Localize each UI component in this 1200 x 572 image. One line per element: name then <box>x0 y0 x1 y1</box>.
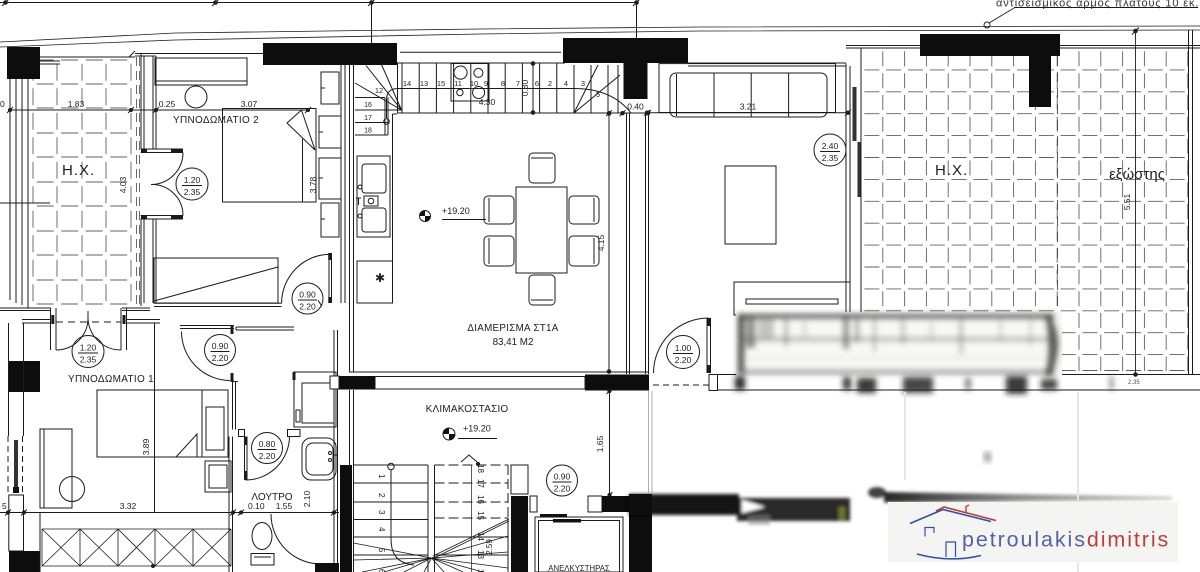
svg-text:✱: ✱ <box>375 271 385 285</box>
svg-text:3: 3 <box>377 510 386 515</box>
svg-text:11: 11 <box>454 79 462 88</box>
svg-text:2.20: 2.20 <box>554 484 571 494</box>
svg-text:4.15: 4.15 <box>596 234 606 251</box>
svg-text:ΔΙΑΜΕΡΙΣΜΑ ΣΤ1Α: ΔΙΑΜΕΡΙΣΜΑ ΣΤ1Α <box>467 323 558 334</box>
svg-text:83,41 Μ2: 83,41 Μ2 <box>493 337 534 348</box>
svg-text:1.55: 1.55 <box>276 501 293 511</box>
svg-text:16: 16 <box>364 102 372 109</box>
svg-text:3.21: 3.21 <box>740 102 757 112</box>
svg-text:2.35: 2.35 <box>1128 380 1140 386</box>
svg-text:1: 1 <box>377 474 386 479</box>
svg-text:2: 2 <box>377 493 386 498</box>
svg-text:1.83: 1.83 <box>68 99 85 109</box>
svg-text:0.40: 0.40 <box>627 102 644 112</box>
svg-text:1.20: 1.20 <box>184 175 201 185</box>
svg-text:εξώστης: εξώστης <box>1109 166 1165 183</box>
svg-text:4: 4 <box>564 79 568 88</box>
svg-text:10: 10 <box>470 79 478 88</box>
svg-text:2.35: 2.35 <box>822 153 839 163</box>
svg-text:4.03: 4.03 <box>118 176 128 193</box>
svg-text:ΥΠΝΟΔΩΜΑΤΙΟ 2: ΥΠΝΟΔΩΜΑΤΙΟ 2 <box>173 115 259 126</box>
svg-text:0.25: 0.25 <box>159 99 176 109</box>
svg-text:14: 14 <box>403 79 411 88</box>
svg-text:0.80: 0.80 <box>520 79 530 96</box>
svg-text:5: 5 <box>596 90 600 99</box>
svg-text:0: 0 <box>0 99 5 109</box>
svg-text:1.20: 1.20 <box>80 343 97 353</box>
svg-text:0.90: 0.90 <box>299 290 316 300</box>
svg-text:17: 17 <box>364 115 372 122</box>
svg-text:+19.20: +19.20 <box>463 424 491 434</box>
svg-text:ΚΛΙΜΑΚΟΣΤΑΣΙΟ: ΚΛΙΜΑΚΟΣΤΑΣΙΟ <box>426 404 509 415</box>
svg-text:3.32: 3.32 <box>120 501 137 511</box>
svg-text:ΑΝΕΛΚΥΣΤΗΡΑΣ: ΑΝΕΛΚΥΣΤΗΡΑΣ <box>548 564 610 572</box>
svg-text:3: 3 <box>581 79 585 88</box>
svg-text:Η.Χ.: Η.Χ. <box>935 162 968 179</box>
svg-text:4.30: 4.30 <box>479 97 496 107</box>
svg-text:+19.20: +19.20 <box>442 206 470 216</box>
svg-text:9: 9 <box>484 79 488 88</box>
svg-text:2: 2 <box>548 79 552 88</box>
svg-text:5: 5 <box>2 501 7 511</box>
svg-text:1.65: 1.65 <box>595 435 605 452</box>
svg-text:8: 8 <box>501 79 505 88</box>
svg-text:petroulakisdimitris: petroulakisdimitris <box>962 528 1170 552</box>
svg-text:6: 6 <box>535 79 539 88</box>
svg-text:Η.Χ.: Η.Χ. <box>62 162 95 179</box>
svg-text:2.35: 2.35 <box>80 355 97 365</box>
svg-text:ΥΠΝΟΔΩΜΑΤΙΟ 1: ΥΠΝΟΔΩΜΑΤΙΟ 1 <box>68 374 154 385</box>
svg-text:18: 18 <box>364 128 372 135</box>
svg-text:2.20: 2.20 <box>299 302 316 312</box>
svg-text:15: 15 <box>476 511 485 520</box>
svg-text:16: 16 <box>476 495 485 504</box>
svg-text:15: 15 <box>437 79 445 88</box>
svg-text:3.78: 3.78 <box>308 176 318 193</box>
svg-text:2.20: 2.20 <box>259 451 276 461</box>
svg-text:2.40: 2.40 <box>822 141 839 151</box>
svg-text:0.90: 0.90 <box>212 341 229 351</box>
svg-text:12: 12 <box>375 86 383 95</box>
svg-text:13: 13 <box>420 79 428 88</box>
svg-text:3.07: 3.07 <box>241 99 258 109</box>
svg-text:1.00: 1.00 <box>675 343 692 353</box>
svg-text:αντισεισμικός αρμός πλάτους 10: αντισεισμικός αρμός πλάτους 10 εκ. <box>996 0 1199 10</box>
svg-text:2.20: 2.20 <box>675 355 692 365</box>
svg-text:17: 17 <box>476 479 485 488</box>
svg-text:0.80: 0.80 <box>259 439 276 449</box>
svg-text:2.10: 2.10 <box>302 490 312 507</box>
svg-text:3.89: 3.89 <box>141 438 151 455</box>
svg-text:0.90: 0.90 <box>554 472 571 482</box>
svg-text:2.35: 2.35 <box>184 187 201 197</box>
svg-text:2.20: 2.20 <box>212 353 229 363</box>
svg-text:4: 4 <box>377 527 386 532</box>
svg-text:5.51: 5.51 <box>1122 193 1132 210</box>
